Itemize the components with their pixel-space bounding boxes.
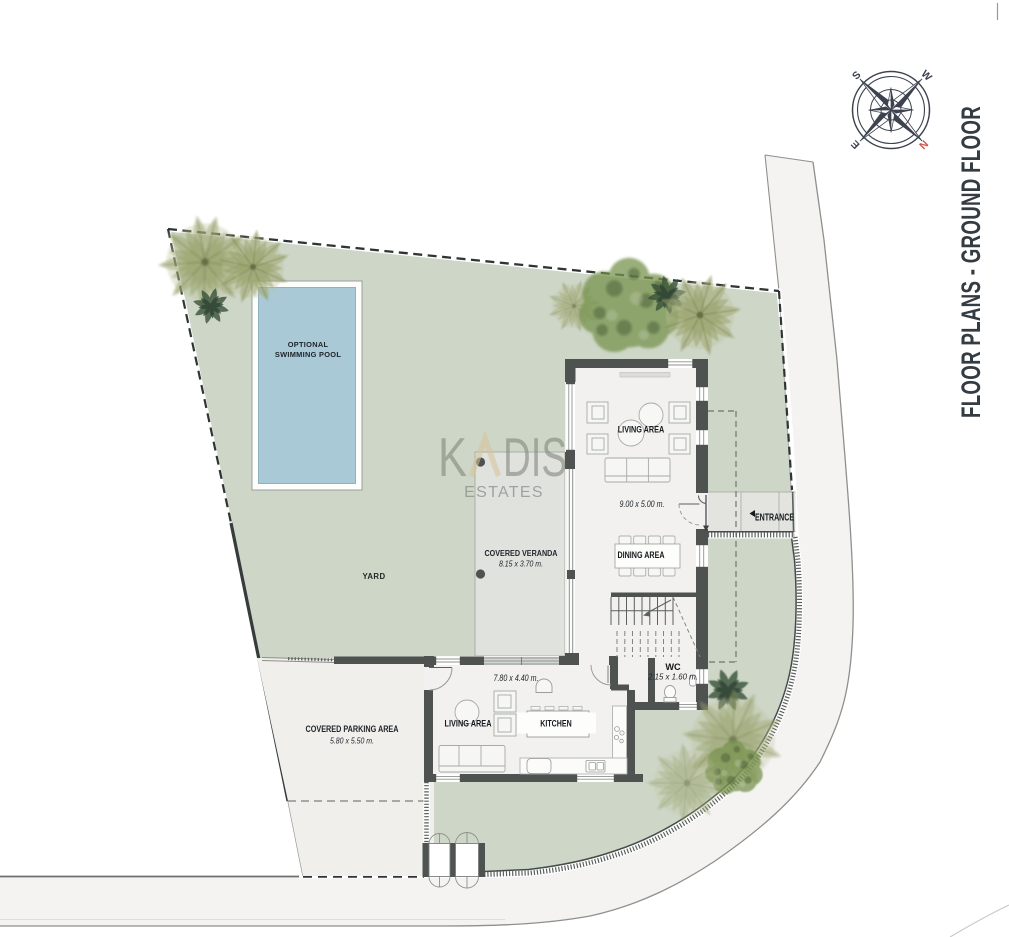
svg-text:2.15 x 1.60 m.: 2.15 x 1.60 m. <box>647 672 698 682</box>
svg-text:ENTRANCE: ENTRANCE <box>755 513 794 524</box>
svg-text:LIVING AREA: LIVING AREA <box>445 719 492 730</box>
svg-text:8.15 x 3.70 m.: 8.15 x 3.70 m. <box>499 560 543 569</box>
svg-text:KITCHEN: KITCHEN <box>540 719 572 730</box>
svg-text:FLOOR PLANS - GROUND FLOOR: FLOOR PLANS - GROUND FLOOR <box>956 106 986 418</box>
svg-text:COVERED PARKING AREA: COVERED PARKING AREA <box>306 724 399 735</box>
svg-text:7.80 x 4.40 m.: 7.80 x 4.40 m. <box>494 673 539 683</box>
svg-text:YARD: YARD <box>363 572 386 581</box>
svg-text:WC: WC <box>665 662 681 672</box>
svg-text:COVERED VERANDA: COVERED VERANDA <box>485 548 558 558</box>
svg-text:LIVING AREA: LIVING AREA <box>618 425 665 436</box>
svg-text:SWIMMING POOL: SWIMMING POOL <box>275 350 341 359</box>
svg-text:ESTATES: ESTATES <box>464 484 544 501</box>
svg-text:DINING AREA: DINING AREA <box>618 550 665 561</box>
svg-text:DIS: DIS <box>503 426 567 488</box>
svg-text:5.80 x 5.50 m.: 5.80 x 5.50 m. <box>330 736 374 746</box>
svg-text:9.00 x 5.00 m.: 9.00 x 5.00 m. <box>620 499 665 509</box>
svg-text:K: K <box>438 426 467 488</box>
svg-text:OPTIONAL: OPTIONAL <box>288 340 329 349</box>
